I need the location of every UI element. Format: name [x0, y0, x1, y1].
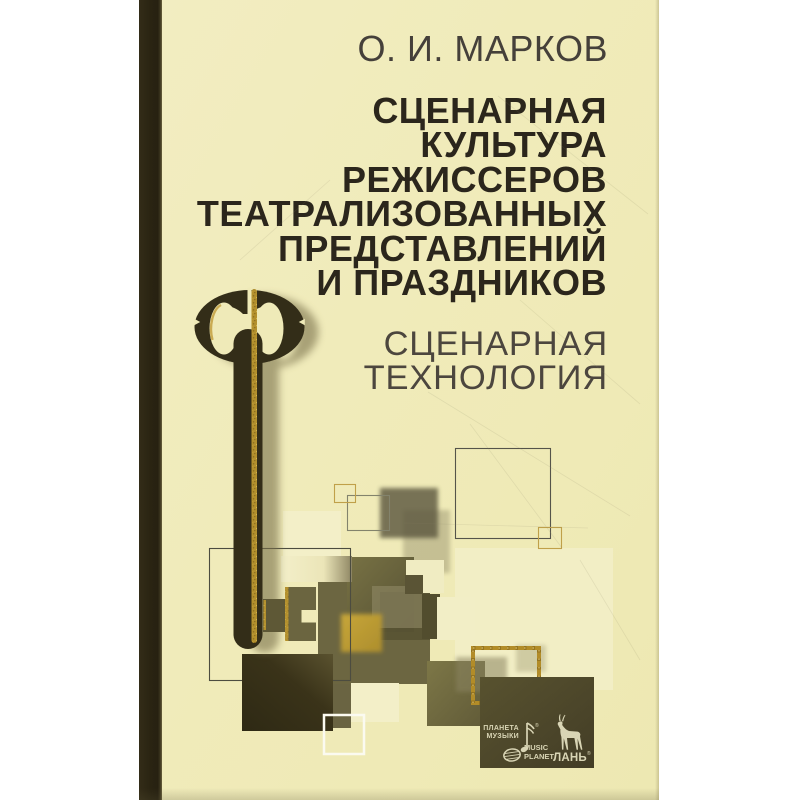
- svg-text:MUSIC: MUSIC: [524, 743, 549, 752]
- svg-text:ПЛАНЕТА: ПЛАНЕТА: [483, 725, 519, 732]
- svg-text:®: ®: [587, 750, 591, 757]
- svg-text:PLANET: PLANET: [524, 752, 554, 761]
- svg-text:МУЗЫКИ: МУЗЫКИ: [486, 733, 519, 740]
- svg-text:®: ®: [535, 722, 539, 729]
- svg-text:ЛАНЬ: ЛАНЬ: [553, 752, 587, 764]
